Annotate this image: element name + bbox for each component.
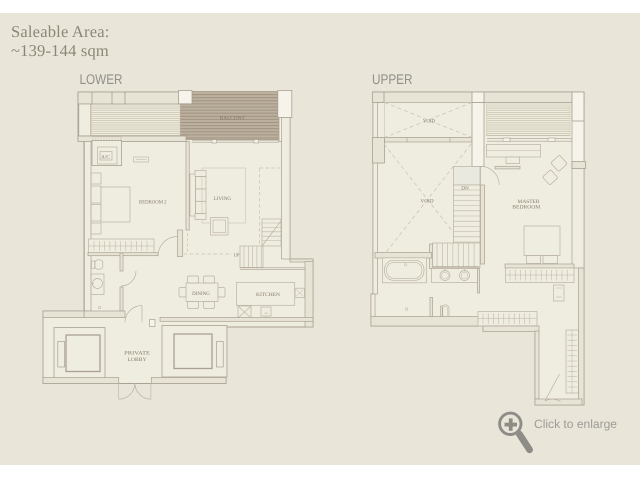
- svg-text:BEDROOM: BEDROOM: [512, 205, 540, 211]
- svg-text:Saleable Area:: Saleable Area:: [11, 22, 110, 41]
- svg-text:VOID: VOID: [423, 118, 435, 124]
- svg-text:DN: DN: [461, 185, 469, 191]
- svg-text:PRIVATE: PRIVATE: [124, 350, 150, 356]
- svg-text:Click to enlarge: Click to enlarge: [534, 417, 617, 431]
- svg-text:BALCONY: BALCONY: [220, 115, 246, 121]
- svg-text:~139-144 sqm: ~139-144 sqm: [11, 41, 109, 60]
- svg-text:KITCHEN: KITCHEN: [256, 292, 280, 298]
- svg-text:UP: UP: [234, 253, 240, 259]
- svg-text:UPPER: UPPER: [372, 71, 413, 87]
- svg-text:VOID: VOID: [420, 198, 433, 204]
- svg-text:LIVING: LIVING: [214, 196, 232, 202]
- svg-text:BEDROOM 2: BEDROOM 2: [139, 199, 167, 205]
- svg-text:DINING: DINING: [192, 291, 210, 297]
- svg-text:A/C: A/C: [101, 154, 111, 160]
- svg-text:LOWER: LOWER: [80, 71, 123, 87]
- svg-text:LOBBY: LOBBY: [128, 357, 147, 363]
